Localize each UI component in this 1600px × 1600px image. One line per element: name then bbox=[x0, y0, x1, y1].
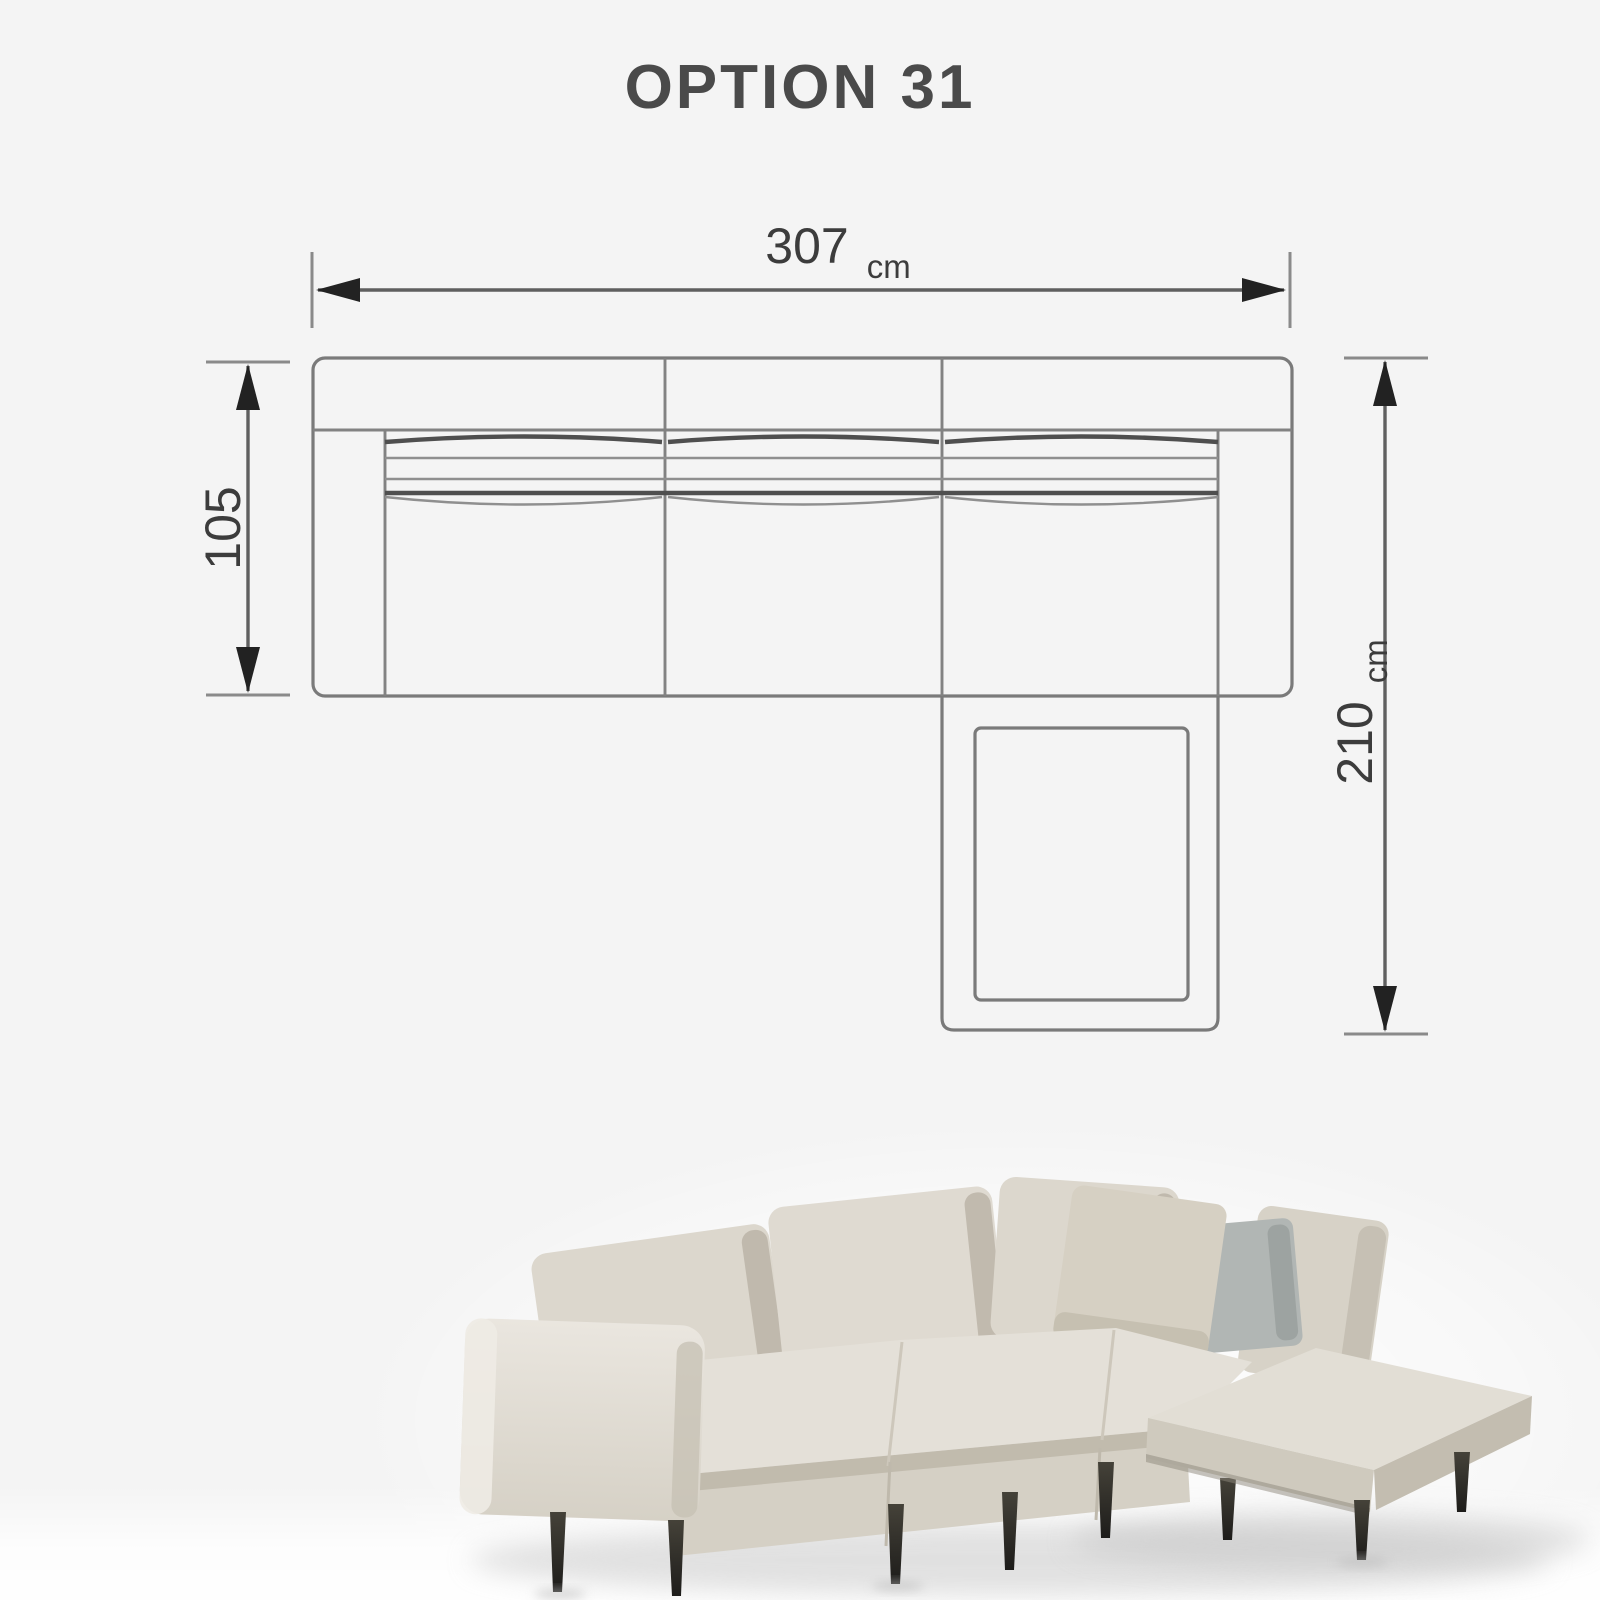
sofa-product-photo bbox=[0, 0, 1600, 1600]
left-armrest bbox=[459, 1318, 706, 1522]
leg-contact-shadow bbox=[534, 1589, 586, 1599]
leg-contact-shadow bbox=[1336, 1557, 1388, 1567]
option-diagram-page: OPTION 31 bbox=[0, 0, 1600, 1600]
ottoman-shadow bbox=[1070, 1512, 1590, 1568]
leg-contact-shadow bbox=[872, 1581, 924, 1591]
